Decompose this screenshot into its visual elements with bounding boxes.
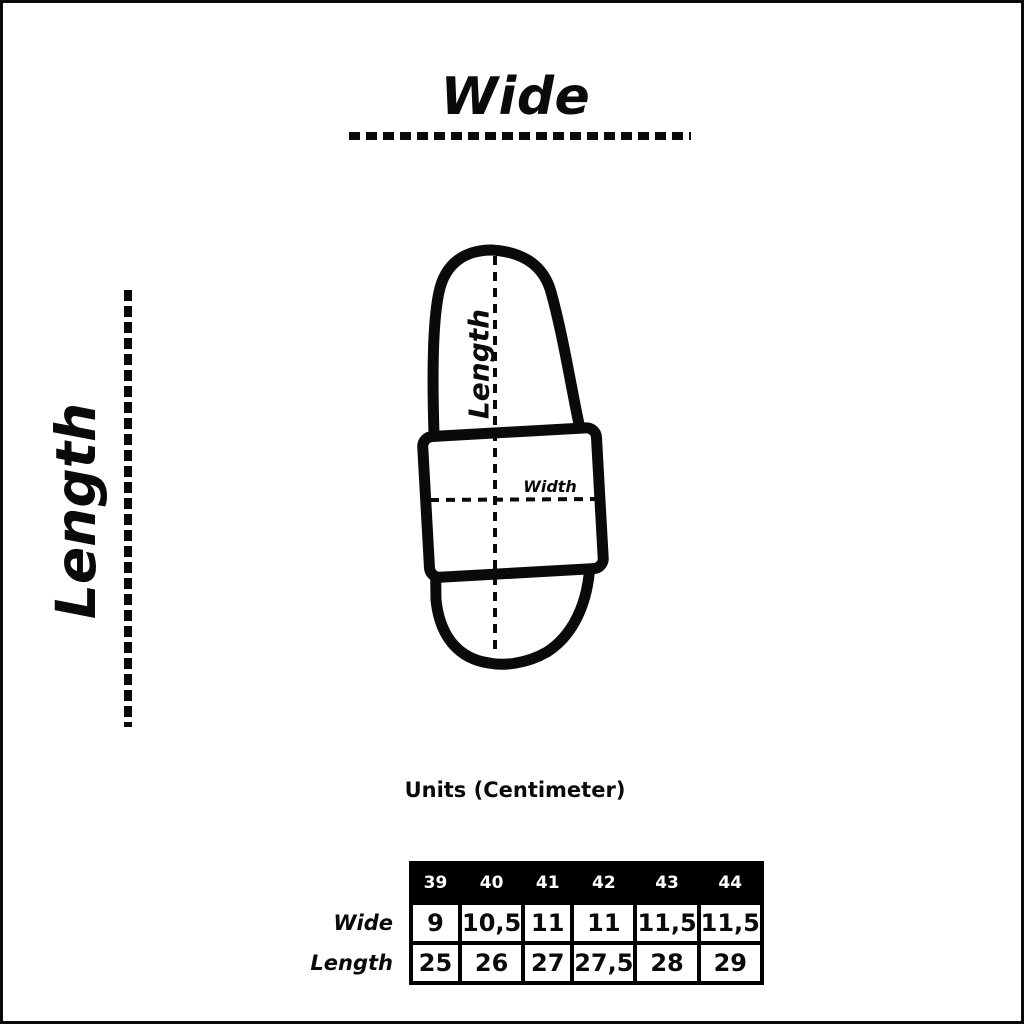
length-axis-title: Length	[44, 403, 108, 619]
wide-row-label: Wide	[281, 903, 411, 943]
length-value-cell: 26	[460, 943, 523, 983]
wide-axis-dashed-line	[349, 132, 691, 140]
length-row: Length 25 26 27 27,5 28 29	[281, 943, 762, 983]
size-header-cell: 39	[411, 863, 460, 903]
length-value-cell: 27,5	[572, 943, 635, 983]
wide-value-cell: 11	[523, 903, 572, 943]
sandal-strap	[422, 427, 604, 577]
sandal-length-label: Length	[463, 309, 496, 419]
wide-value-cell: 11,5	[699, 903, 762, 943]
sandal-diagram: Length Width	[403, 233, 633, 683]
size-header-spacer	[281, 863, 411, 903]
size-header-cell: 40	[460, 863, 523, 903]
size-header-cell: 43	[635, 863, 698, 903]
length-value-cell: 29	[699, 943, 762, 983]
size-table-block: 39 40 41 42 43 44 Wide 9 10,5 11 11 11,5…	[281, 861, 764, 985]
size-chart-canvas: Wide Length Length Width Units (Centimet…	[0, 0, 1024, 1024]
length-value-cell: 25	[411, 943, 460, 983]
wide-value-cell: 9	[411, 903, 460, 943]
size-header-row: 39 40 41 42 43 44	[281, 863, 762, 903]
wide-value-cell: 11	[572, 903, 635, 943]
wide-axis-title: Wide	[343, 67, 688, 127]
length-axis-dashed-line	[124, 290, 132, 727]
size-table: 39 40 41 42 43 44 Wide 9 10,5 11 11 11,5…	[281, 861, 764, 985]
size-header-cell: 42	[572, 863, 635, 903]
units-caption: Units (Centimeter)	[315, 778, 715, 802]
wide-value-cell: 11,5	[635, 903, 698, 943]
size-header-cell: 41	[523, 863, 572, 903]
wide-value-cell: 10,5	[460, 903, 523, 943]
length-value-cell: 27	[523, 943, 572, 983]
wide-row: Wide 9 10,5 11 11 11,5 11,5	[281, 903, 762, 943]
length-row-label: Length	[281, 943, 411, 983]
sandal-width-label: Width	[523, 477, 577, 496]
size-header-cell: 44	[699, 863, 762, 903]
length-value-cell: 28	[635, 943, 698, 983]
